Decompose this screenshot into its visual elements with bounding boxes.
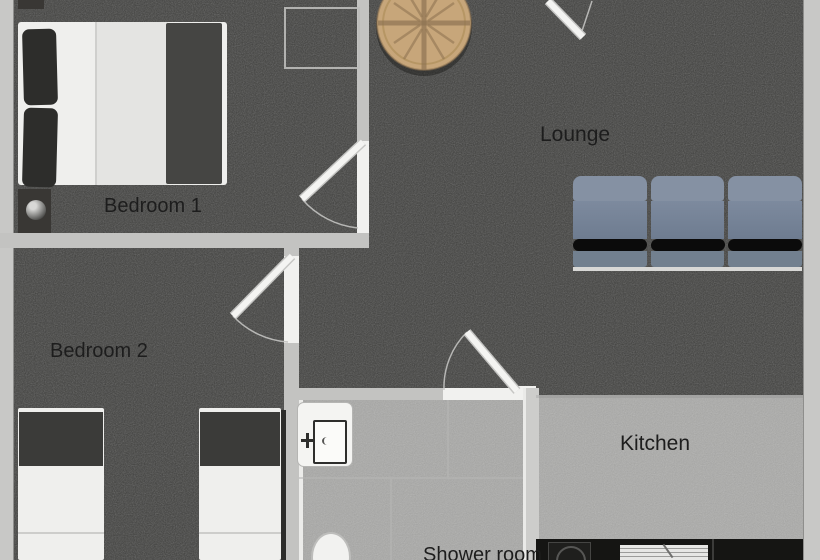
sofa	[573, 174, 802, 271]
tile-grout-v2	[390, 479, 392, 560]
bed-blanket	[200, 412, 280, 466]
wall-bedroom2-hall-upper	[284, 248, 299, 256]
tile-grout-h	[299, 477, 523, 479]
sheet-fold	[199, 532, 281, 534]
counter-divider	[712, 539, 714, 560]
kitchen-counter	[536, 539, 803, 560]
bed-blanket	[19, 412, 103, 466]
wall-outer-left	[0, 0, 14, 560]
oven-handle	[663, 544, 674, 558]
drain-icon	[322, 437, 332, 445]
washbasin	[297, 402, 353, 467]
wall-outer-right	[803, 0, 820, 560]
bed-wall-shadow	[281, 410, 286, 560]
sofa-cushion	[728, 174, 802, 271]
oven	[620, 545, 708, 560]
bed-duvet	[95, 22, 168, 185]
bed-blanket	[166, 23, 222, 184]
bedside-lamp	[26, 200, 46, 220]
room-label-shower-room: Shower room	[423, 545, 542, 560]
nightstand-top	[18, 0, 44, 9]
tile-grout-v1	[447, 400, 449, 477]
single-bed-left	[18, 408, 104, 560]
room-label-bedroom1: Bedroom 1	[104, 196, 202, 217]
round-dining-table	[374, 0, 474, 79]
sofa-cushion	[651, 174, 725, 271]
doorway-shower	[443, 388, 523, 400]
wall-bedroom2-hall-lower	[284, 343, 299, 398]
wall-lounge-shower	[299, 388, 443, 400]
pillow	[22, 108, 58, 188]
faucet-icon	[306, 433, 309, 448]
wall-lounge-kitchen-line	[536, 395, 803, 398]
doorway-bedroom2	[284, 256, 299, 343]
floor-plan: Bedroom 1 Bedroom 2 Lounge Kitchen Showe…	[0, 0, 820, 560]
nightstand-bottom	[18, 189, 51, 233]
sofa-cushion	[573, 174, 647, 271]
wardrobe-outline	[284, 7, 360, 69]
wall-bedroom1-bedroom2	[0, 233, 369, 248]
wall-shower-kitchen	[523, 388, 539, 560]
kitchen-floor	[536, 398, 803, 560]
room-label-kitchen: Kitchen	[620, 433, 690, 455]
room-label-bedroom2: Bedroom 2	[50, 341, 148, 362]
sofa-base	[573, 267, 802, 271]
pillow	[22, 29, 58, 106]
room-label-lounge: Lounge	[540, 124, 610, 146]
double-bed	[18, 22, 227, 185]
doorway-bedroom1	[357, 141, 369, 233]
cooktop	[548, 542, 591, 560]
single-bed-right	[199, 408, 281, 560]
sheet-fold	[18, 532, 104, 534]
burner-icon	[556, 546, 586, 560]
